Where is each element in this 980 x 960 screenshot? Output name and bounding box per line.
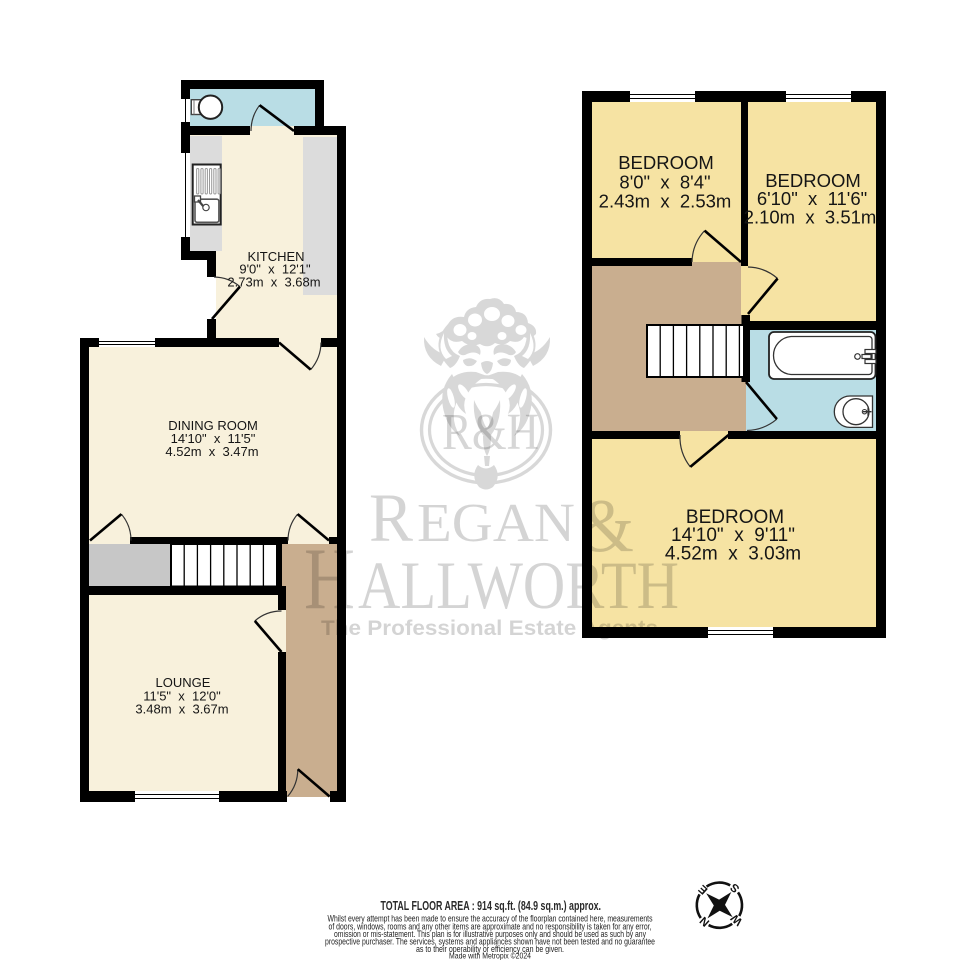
svg-text:E: E xyxy=(696,882,710,896)
svg-text:ALLWORTH: ALLWORTH xyxy=(358,547,679,623)
svg-text:Made with Metropix ©2024: Made with Metropix ©2024 xyxy=(449,952,531,960)
svg-text:R&H: R&H xyxy=(442,404,539,461)
svg-text:TOTAL FLOOR AREA : 914 sq.ft.: TOTAL FLOOR AREA : 914 sq.ft. (84.9 sq.m… xyxy=(381,898,602,913)
svg-text:4.52m x 3.47m: 4.52m x 3.47m xyxy=(165,444,258,459)
svg-text:2.43m x 2.53m: 2.43m x 2.53m xyxy=(599,191,732,212)
svg-text:2.10m x 3.51m: 2.10m x 3.51m xyxy=(744,207,877,228)
svg-text:H: H xyxy=(304,531,355,628)
svg-text:BEDROOM: BEDROOM xyxy=(618,152,714,173)
svg-text:4.52m x 3.03m: 4.52m x 3.03m xyxy=(665,544,801,565)
svg-text:8'0" x 8'4": 8'0" x 8'4" xyxy=(619,172,710,193)
svg-text:2.73m x 3.68m: 2.73m x 3.68m xyxy=(227,275,320,290)
svg-text:S: S xyxy=(728,880,742,894)
svg-text:3.48m x 3.67m: 3.48m x 3.67m xyxy=(135,702,228,717)
svg-text:EGAN: EGAN xyxy=(417,492,575,553)
svg-text:R: R xyxy=(369,480,413,556)
